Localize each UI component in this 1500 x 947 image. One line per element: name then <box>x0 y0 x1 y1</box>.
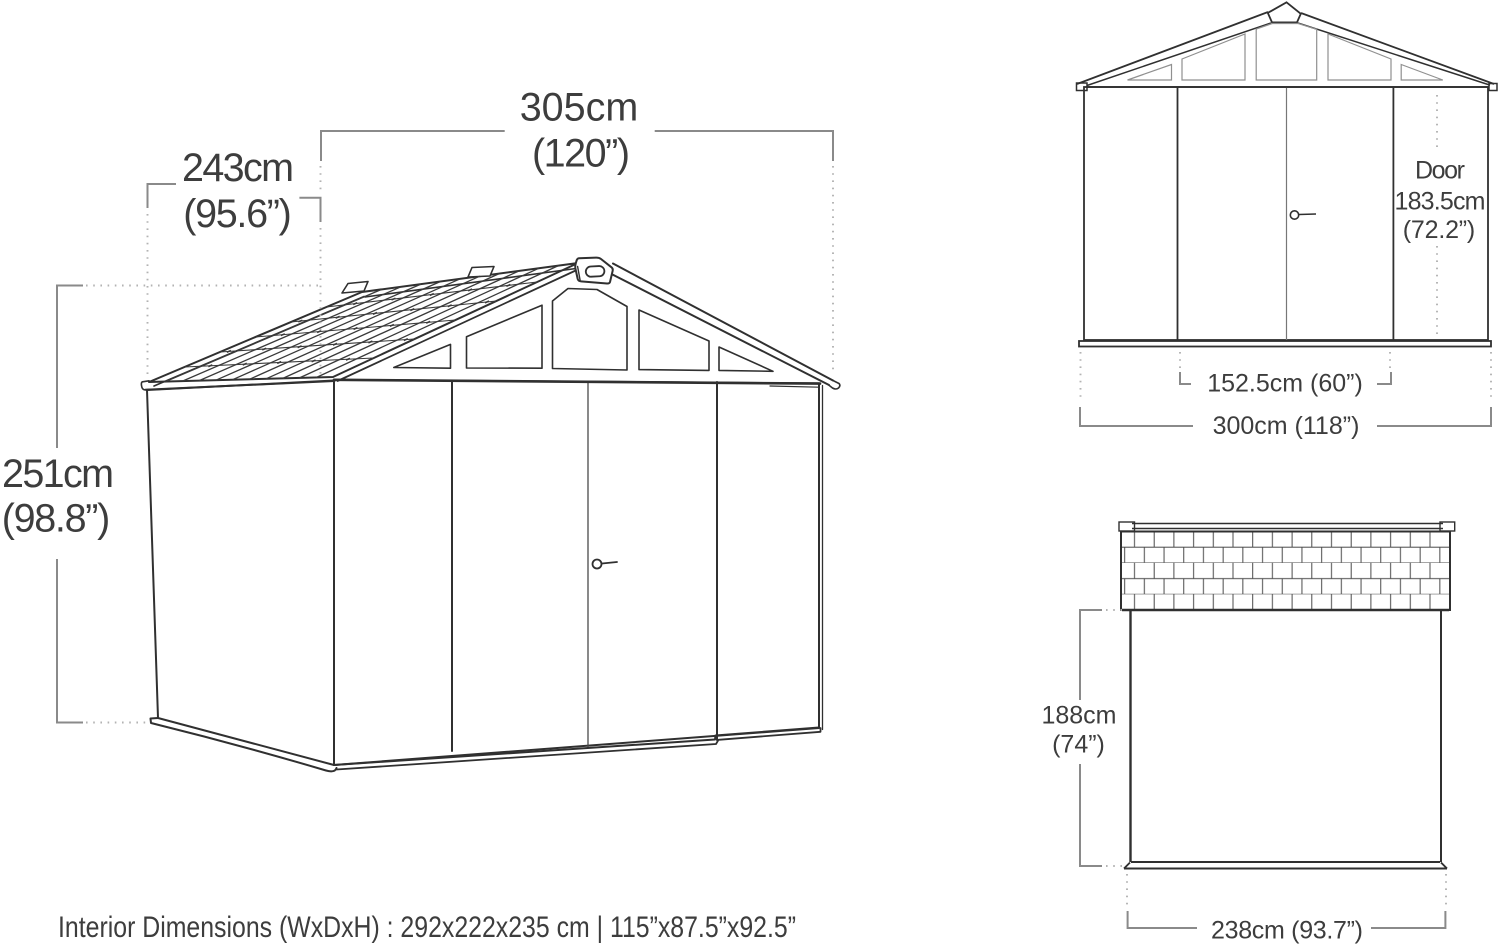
svg-text:(72.2”): (72.2”) <box>1403 216 1476 244</box>
svg-text:Interior Dimensions (WxDxH) :: Interior Dimensions (WxDxH) : 292x222x23… <box>58 911 796 944</box>
svg-text:183.5cm: 183.5cm <box>1395 188 1486 216</box>
svg-text:305cm: 305cm <box>520 86 639 130</box>
svg-text:Door: Door <box>1415 157 1465 185</box>
svg-text:152.5cm (60”): 152.5cm (60”) <box>1207 370 1363 398</box>
svg-text:300cm (118”): 300cm (118”) <box>1213 412 1360 440</box>
svg-text:251cm: 251cm <box>2 452 114 496</box>
svg-text:188cm: 188cm <box>1041 702 1116 730</box>
svg-text:238cm (93.7”): 238cm (93.7”) <box>1211 917 1363 945</box>
svg-text:(74”): (74”) <box>1052 731 1105 759</box>
svg-text:(98.8”): (98.8”) <box>2 497 111 541</box>
svg-text:(95.6”): (95.6”) <box>183 192 292 236</box>
svg-text:(120”): (120”) <box>532 132 630 176</box>
svg-text:243cm: 243cm <box>182 146 294 190</box>
